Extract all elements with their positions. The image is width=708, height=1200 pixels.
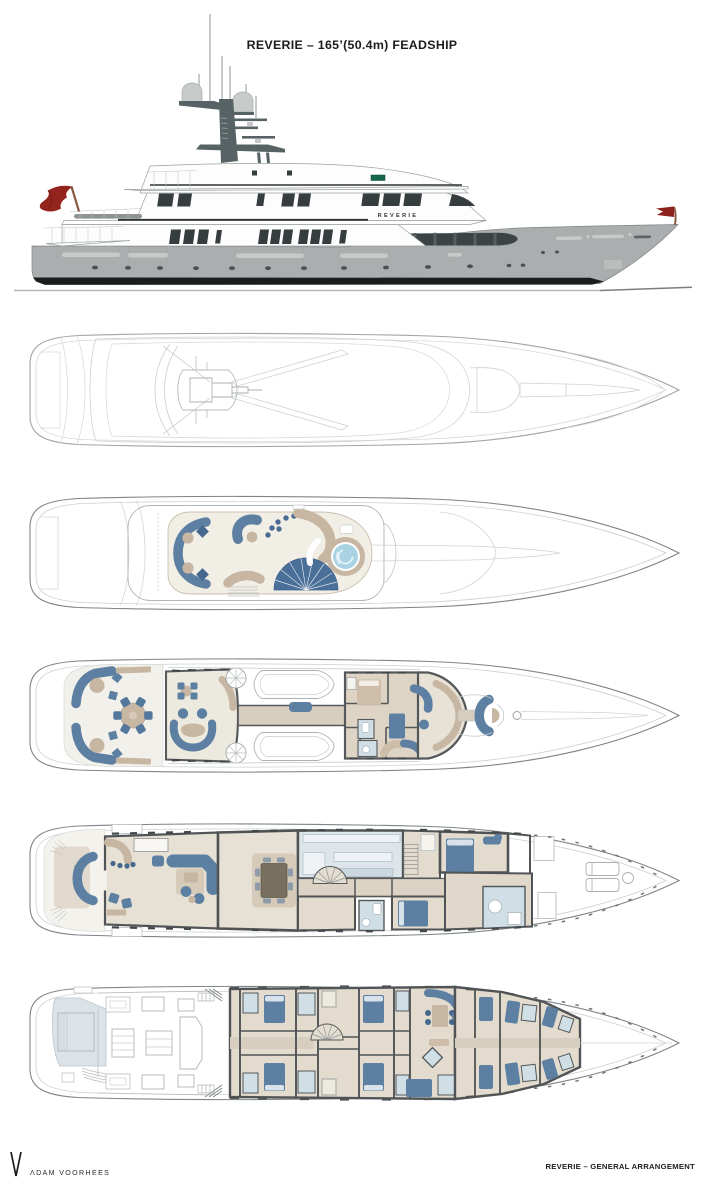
svg-text:REVERIE – GENERAL ARRANGEMENT: REVERIE – GENERAL ARRANGEMENT bbox=[546, 1162, 696, 1171]
svg-text:ΛDAM VOORHEES: ΛDAM VOORHEES bbox=[30, 1169, 110, 1177]
svg-text:REVERIE: REVERIE bbox=[378, 213, 419, 219]
svg-text:REVERIE – 165’(50.4m) FEADSHIP: REVERIE – 165’(50.4m) FEADSHIP bbox=[247, 38, 458, 52]
